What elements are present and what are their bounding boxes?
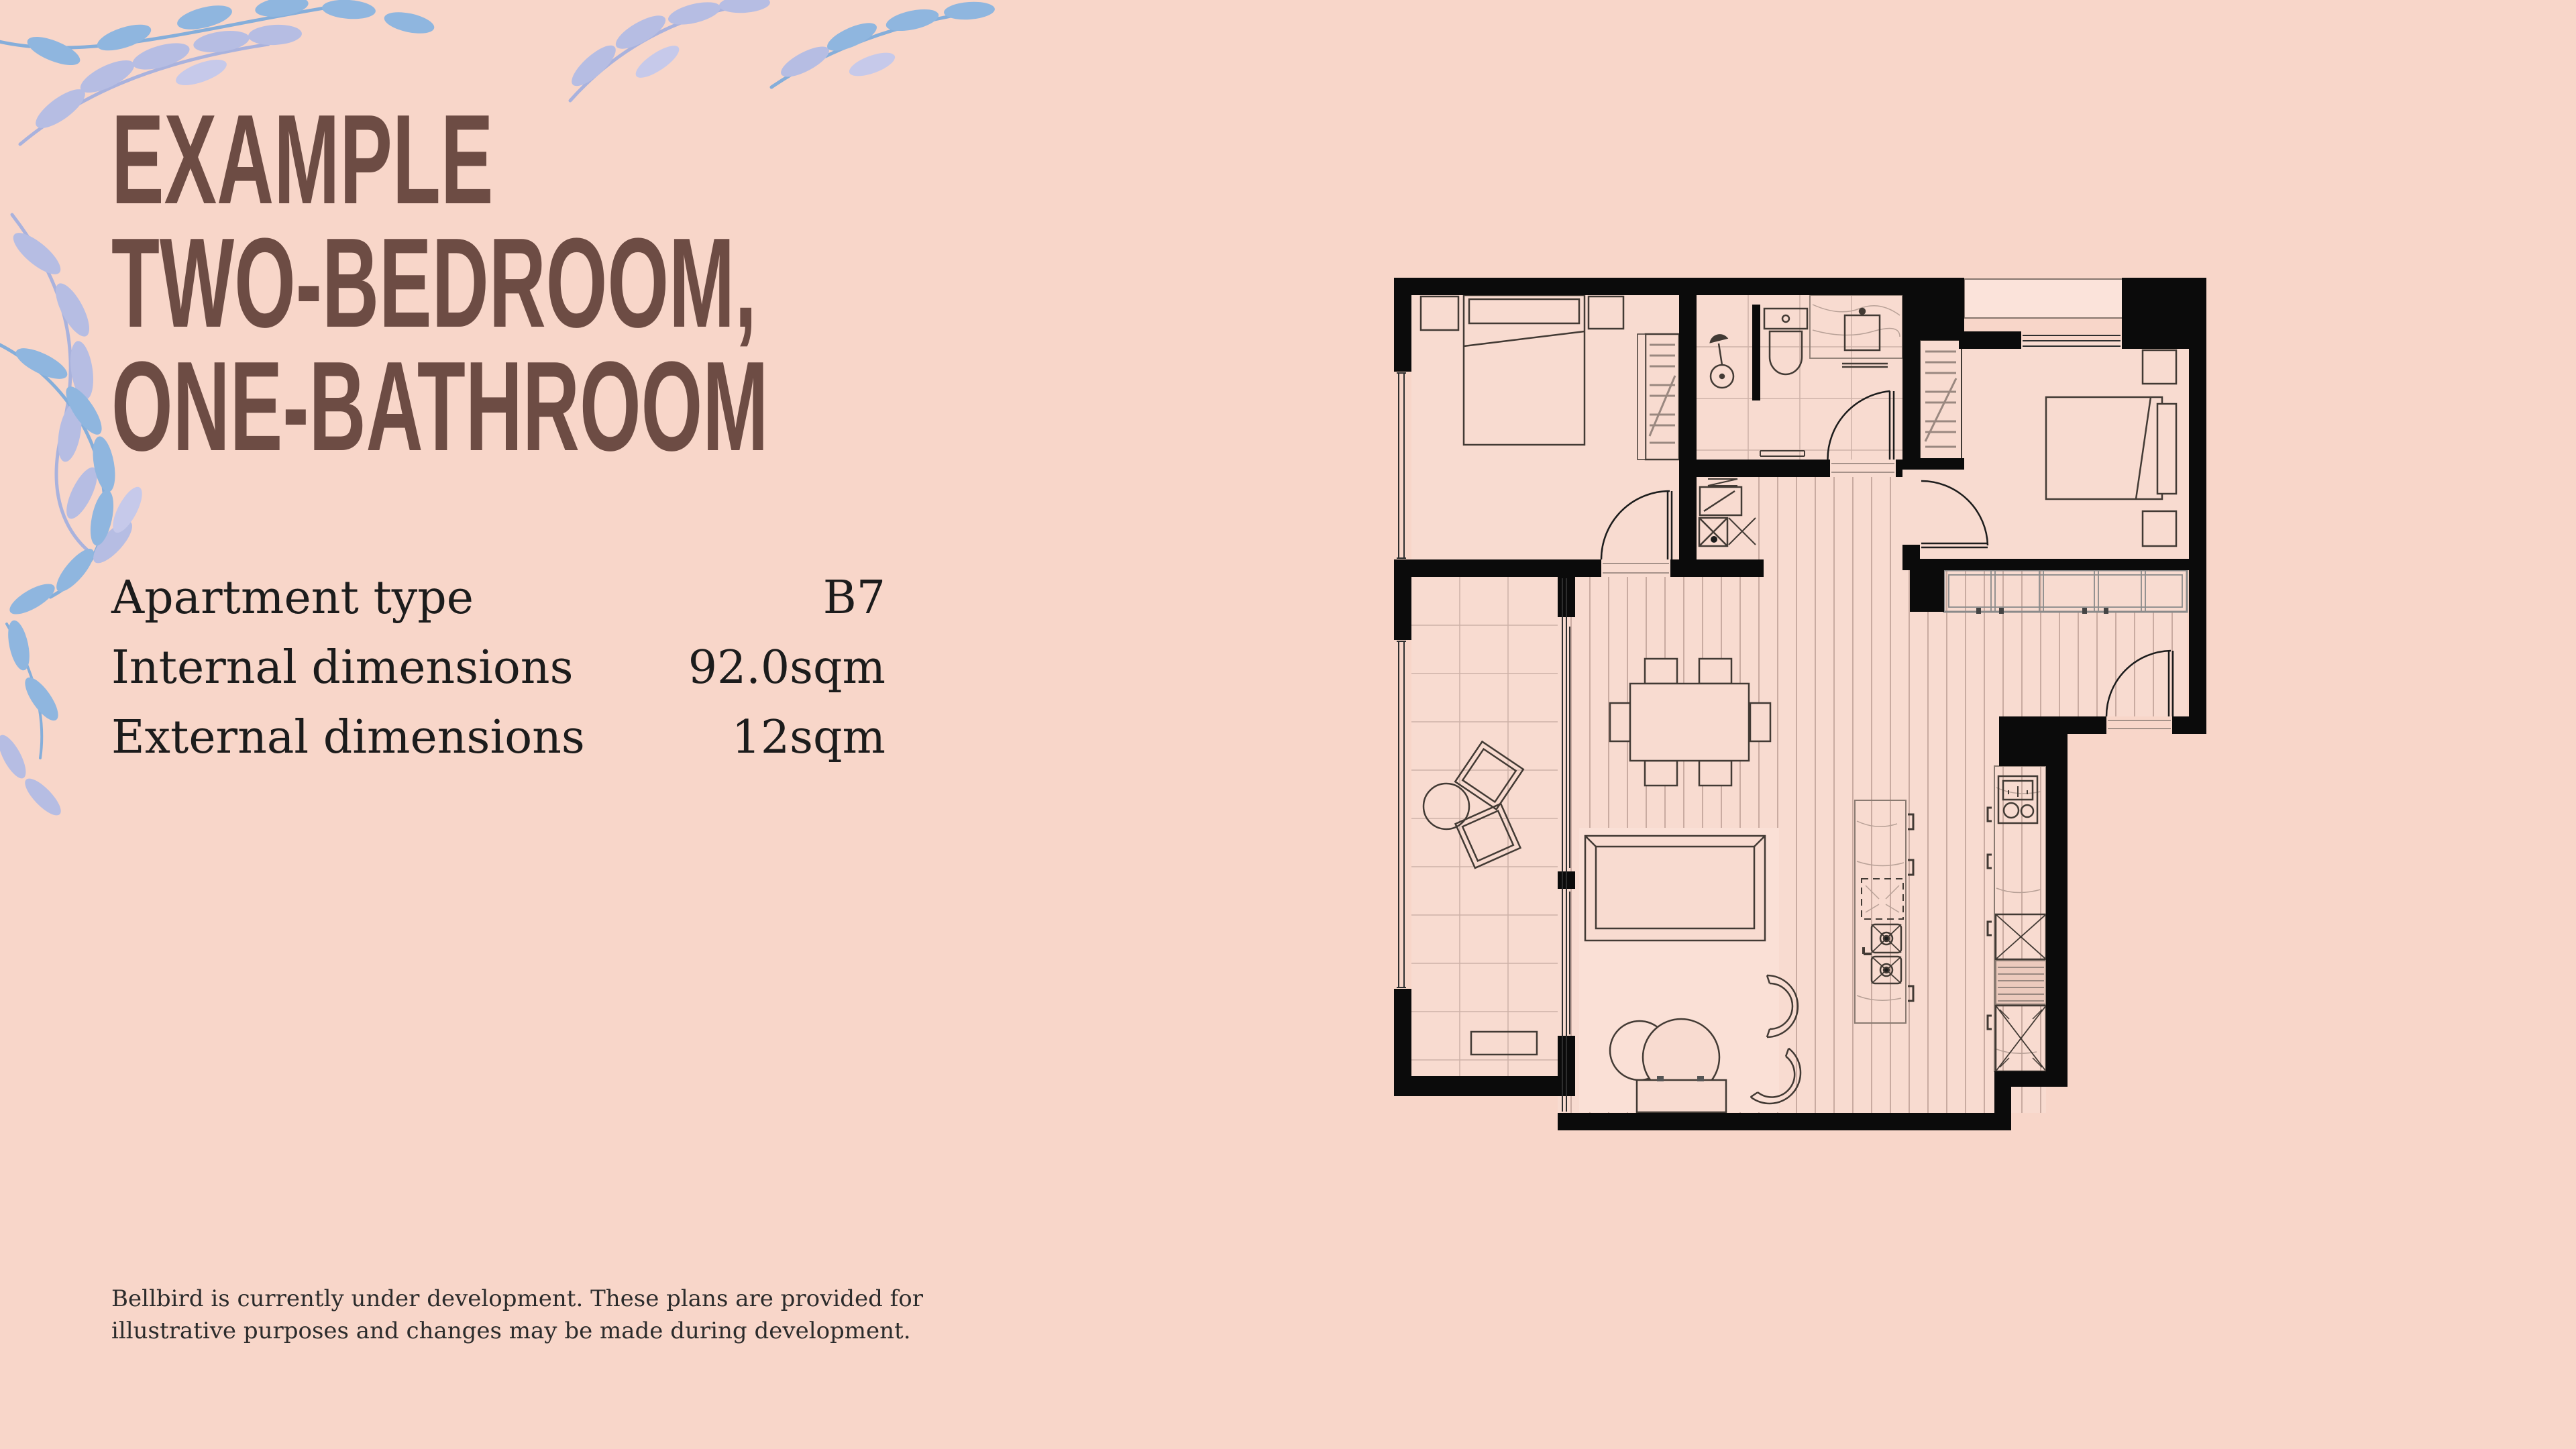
wardrobe-icon bbox=[1920, 340, 1962, 460]
external-planter bbox=[1964, 279, 2125, 318]
title-line-1: EXAMPLE bbox=[111, 98, 768, 221]
spec-row-apartment-type: Apartment type B7 bbox=[111, 572, 885, 641]
bedside-table-icon bbox=[1421, 297, 1458, 330]
spec-value: 12sqm bbox=[732, 711, 885, 764]
page-title: EXAMPLE TWO-BEDROOM, ONE-BATHROOM bbox=[111, 98, 768, 468]
dishwasher-icon bbox=[1996, 961, 2046, 1004]
dining-chair-icon bbox=[1750, 703, 1770, 741]
sofa-icon bbox=[1585, 836, 1765, 941]
bed-icon bbox=[2046, 397, 2162, 499]
disclaimer-text: Bellbird is currently under development.… bbox=[111, 1283, 923, 1347]
spec-table: Apartment type B7 Internal dimensions 92… bbox=[111, 572, 885, 781]
floor-plan bbox=[1394, 278, 2214, 1131]
spec-row-internal-dimensions: Internal dimensions 92.0sqm bbox=[111, 641, 885, 711]
dining-table-icon bbox=[1630, 684, 1749, 761]
bedside-table-icon bbox=[1589, 297, 1623, 329]
tv-unit-icon bbox=[1637, 1076, 1726, 1112]
dining-chair-icon bbox=[1699, 761, 1731, 786]
dining-chair-icon bbox=[1645, 659, 1677, 684]
dining-chair-icon bbox=[1645, 761, 1677, 786]
disclaimer-line-2: illustrative purposes and changes may be… bbox=[111, 1315, 923, 1347]
dining-chair-icon bbox=[1699, 659, 1731, 684]
spec-row-external-dimensions: External dimensions 12sqm bbox=[111, 711, 885, 781]
spec-value: B7 bbox=[823, 572, 885, 625]
dining-chair-icon bbox=[1610, 703, 1630, 741]
spec-value: 92.0sqm bbox=[688, 641, 885, 694]
bedside-table-icon bbox=[2143, 511, 2176, 546]
title-line-2: TWO-BEDROOM, bbox=[111, 221, 768, 345]
spec-label: Apartment type bbox=[111, 572, 474, 625]
bedside-table-icon bbox=[2143, 350, 2176, 384]
spec-label: External dimensions bbox=[111, 711, 585, 764]
shower-stub-wall bbox=[1752, 305, 1760, 400]
spec-label: Internal dimensions bbox=[111, 641, 574, 694]
title-line-3: ONE-BATHROOM bbox=[111, 345, 768, 468]
brochure-page: EXAMPLE TWO-BEDROOM, ONE-BATHROOM Apartm… bbox=[0, 0, 2576, 1449]
disclaimer-line-1: Bellbird is currently under development.… bbox=[111, 1283, 923, 1315]
